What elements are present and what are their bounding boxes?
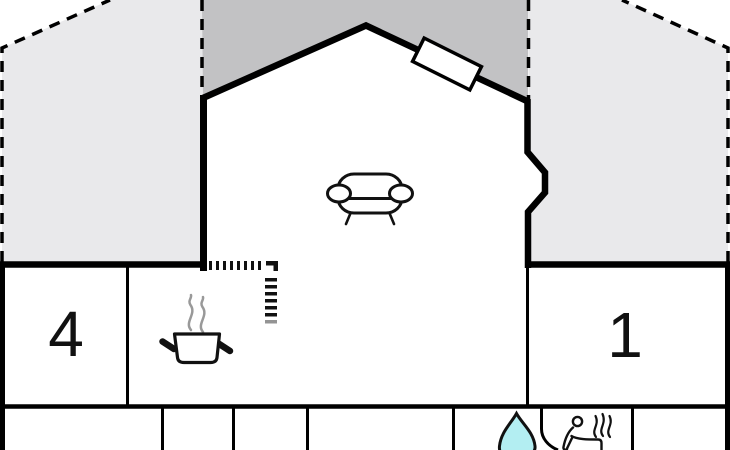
cooking-pot-icon <box>163 295 231 363</box>
floor-plan-canvas: 4 1 <box>0 0 730 450</box>
pot-handle-left <box>163 342 175 350</box>
roof-shade-left <box>2 0 203 262</box>
sauna-steam-icon <box>594 414 611 437</box>
roof-shade-center <box>202 0 528 101</box>
sofa-icon <box>328 174 413 224</box>
sauna-person-icon <box>563 414 610 450</box>
pot-body <box>175 334 220 363</box>
lower-wall-curved-partition <box>542 406 559 450</box>
water-drop-icon <box>499 414 535 450</box>
roof-shade-right <box>528 0 728 262</box>
room-4-label: 4 <box>48 298 84 370</box>
pot-steam-icon <box>189 295 205 332</box>
floor-plan-drawing: 4 1 <box>0 0 730 450</box>
loft-edge-dotted-marks <box>209 261 278 324</box>
room-1-label: 1 <box>607 299 643 371</box>
pot-handle-right <box>219 344 231 352</box>
